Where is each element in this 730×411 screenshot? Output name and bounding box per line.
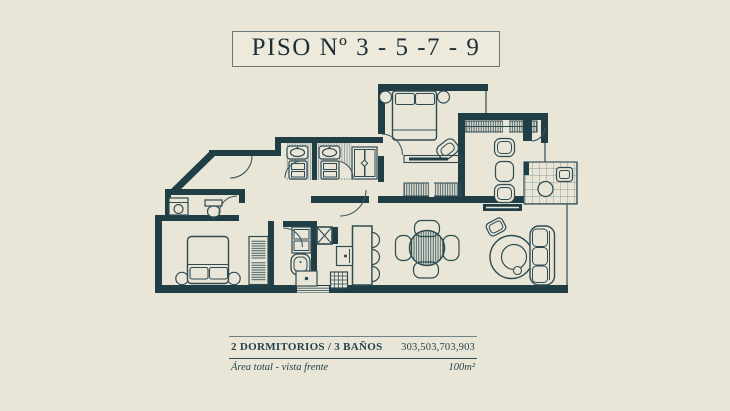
unit-numbers: 303,503,703,903 [401,342,475,353]
entry-door-icon [523,117,532,141]
washer-icon [331,272,348,288]
ottoman-icon [485,217,507,238]
double-bed-icon [188,237,229,284]
master-bedroom [380,91,462,197]
cabinet-icon [337,247,353,266]
dining-table-icon [410,231,445,266]
bedroom-2 [176,237,268,285]
kitchen [495,139,578,205]
sink-icon [538,182,553,197]
area-label: Área total - vista frente [231,362,328,373]
bar-stool-icon [372,250,380,265]
bedrooms-bathrooms-label: 2 DORMITORIOS / 3 BAÑOS [231,341,383,353]
nightstand-icon [380,91,392,103]
double-bed-icon [393,91,437,140]
shelf-icon [483,204,522,211]
bar-counter-icon [353,226,380,285]
cabinet-icon [296,271,317,286]
stove-icon [557,168,573,182]
living-room [483,204,555,285]
nightstand-icon [438,91,450,103]
bar-stool-icon [372,233,379,248]
breakfast-chair-icon [495,139,515,203]
spec-block: 2 DORMITORIOS / 3 BAÑOS 303,503,703,903 … [229,336,477,373]
sink-icon [287,146,308,159]
dresser-icon [404,182,461,197]
lounge-chair-icon [490,236,533,279]
closet-icon [352,147,377,179]
wardrobe-icon [249,237,268,285]
toilet-icon [321,161,339,179]
bottom-window [297,286,329,293]
shelf-icon [404,156,461,163]
area-value: 100m² [449,362,475,373]
bathroom-2 [169,198,222,217]
toilet-icon [289,161,307,179]
bathroom-3 [291,227,353,288]
sink-icon [319,146,340,159]
shaft-icon [317,227,332,244]
bar-stool-icon [372,267,380,282]
dining-area [353,221,460,286]
nightstand-icon [228,272,240,284]
nightstand-icon [176,272,188,284]
poster: PISO Nº 3 - 5 -7 - 9 [0,0,730,411]
sofa-icon [530,226,555,285]
sink-icon [169,198,188,215]
